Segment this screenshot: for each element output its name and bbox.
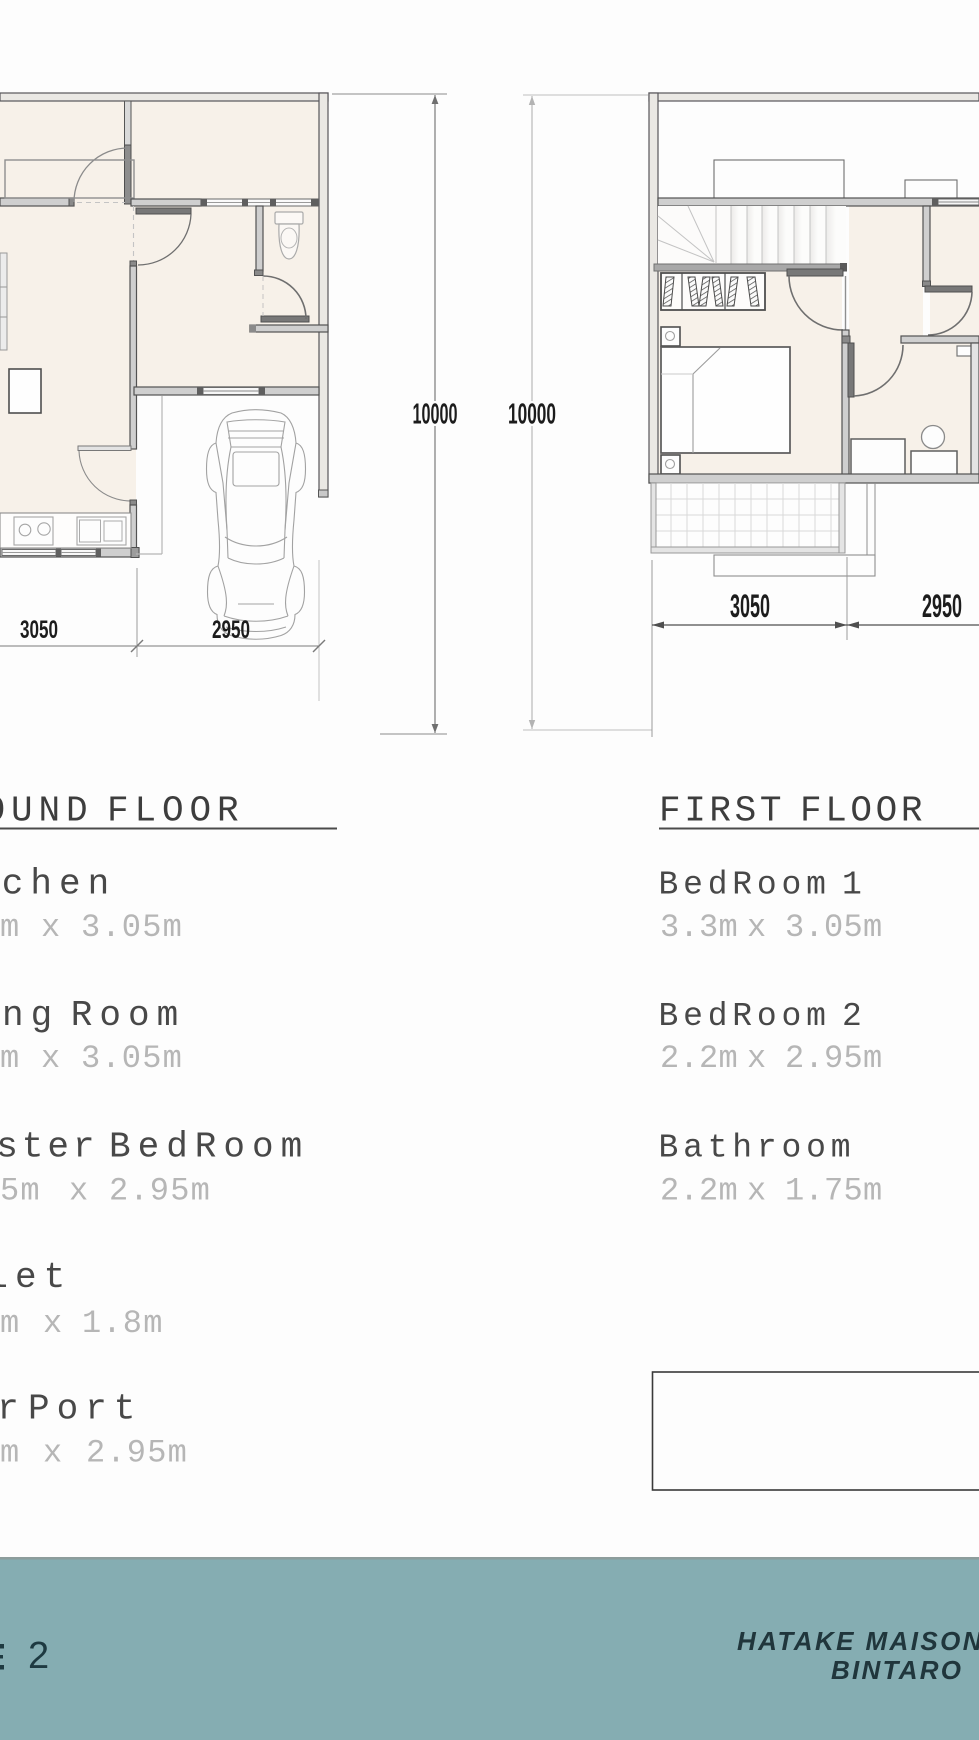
svg-text:x: x xyxy=(747,909,767,946)
svg-text:2.95m: 2.95m xyxy=(785,1040,883,1077)
svg-text:Bathroom: Bathroom xyxy=(659,1130,856,1167)
svg-text:BedRoom: BedRoom xyxy=(109,1127,309,1168)
svg-text:2.95m: 2.95m xyxy=(0,1435,20,1472)
svg-text:Port: Port xyxy=(28,1389,142,1430)
svg-text:1: 1 xyxy=(842,867,867,904)
svg-text:3.05m: 3.05m xyxy=(785,909,883,946)
svg-text:Room: Room xyxy=(71,995,185,1036)
svg-text:2950: 2950 xyxy=(922,588,962,624)
svg-text:x: x xyxy=(747,1040,767,1077)
svg-text:FLOOR: FLOOR xyxy=(107,791,245,832)
svg-text:1.75m: 1.75m xyxy=(785,1173,883,1210)
svg-text:2.95m: 2.95m xyxy=(86,1435,188,1472)
svg-text:x: x xyxy=(43,1305,63,1342)
svg-text:2950: 2950 xyxy=(212,616,250,644)
svg-text:10000: 10000 xyxy=(413,399,458,431)
svg-text:1.5m: 1.5m xyxy=(0,1305,20,1342)
svg-text:BedRoom: BedRoom xyxy=(659,867,831,904)
svg-text:2.95m: 2.95m xyxy=(109,1173,211,1210)
svg-text:Master: Master xyxy=(0,1127,99,1168)
svg-text:Living: Living xyxy=(0,995,59,1036)
svg-text:2.95m: 2.95m xyxy=(0,1173,41,1210)
svg-text:GROUND: GROUND xyxy=(0,791,94,832)
svg-text:3050: 3050 xyxy=(730,588,770,624)
svg-text:3.3m: 3.3m xyxy=(0,1040,20,1077)
svg-text:x: x xyxy=(41,909,61,946)
svg-text:3.3m: 3.3m xyxy=(660,909,738,946)
svg-text:10000: 10000 xyxy=(508,399,556,431)
svg-text:2.2m: 2.2m xyxy=(660,1173,738,1210)
svg-text:Kitchen: Kitchen xyxy=(0,864,116,905)
svg-text:3.05m: 3.05m xyxy=(81,909,183,946)
svg-text:x: x xyxy=(43,1435,63,1472)
svg-text:3.05m: 3.05m xyxy=(81,1040,183,1077)
svg-text:x: x xyxy=(69,1173,89,1210)
svg-text:BedRoom: BedRoom xyxy=(659,998,831,1035)
svg-text:Toilet: Toilet xyxy=(0,1257,72,1298)
svg-text:3050: 3050 xyxy=(20,616,58,644)
svg-text:FIRST: FIRST xyxy=(659,791,785,832)
svg-text:2: 2 xyxy=(842,998,867,1035)
svg-text:Car: Car xyxy=(0,1389,23,1430)
svg-text:BINTARO: BINTARO xyxy=(831,1655,963,1685)
svg-text:HATAKE MAISONETTE: HATAKE MAISONETTE xyxy=(737,1626,979,1656)
svg-text:2: 2 xyxy=(28,1635,49,1677)
svg-text:2.2m: 2.2m xyxy=(660,1040,738,1077)
svg-text:1.8m: 1.8m xyxy=(82,1305,164,1342)
svg-text:x: x xyxy=(747,1173,767,1210)
svg-text:3.3m: 3.3m xyxy=(0,909,20,946)
svg-text:x: x xyxy=(41,1040,61,1077)
svg-text:FLOOR: FLOOR xyxy=(800,791,926,832)
